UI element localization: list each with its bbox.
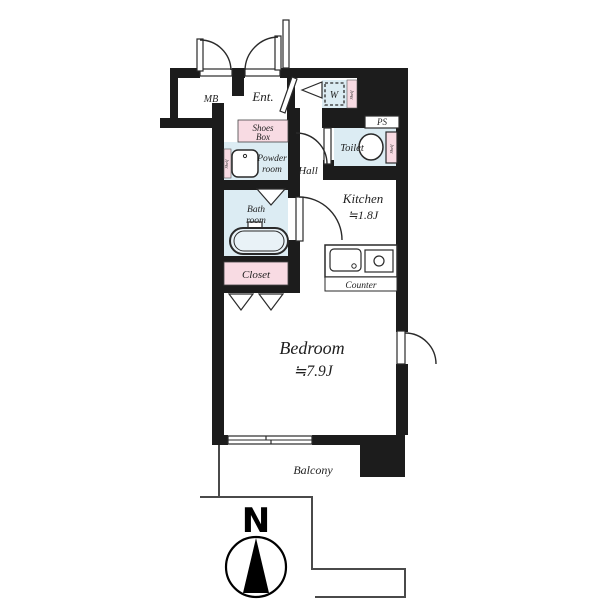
toilet-label: Toilet: [340, 143, 365, 154]
closet-label: Closet: [242, 269, 271, 281]
bedroom-label: Bedroom: [279, 338, 344, 358]
shoes-box-label-2: Box: [256, 132, 270, 142]
closet-door-left-icon: [229, 294, 253, 310]
entrance-door-leaf: [275, 36, 281, 70]
floor-plan: N MB Ent. Shoes Box Powder room Bath roo…: [0, 0, 600, 600]
washer-shelf-label: Shelf: [349, 90, 354, 100]
ps-label: PS: [376, 117, 387, 127]
hall-door-arc: [299, 197, 342, 240]
hall-label: Hall: [297, 165, 318, 177]
toilet-shelf-label: Shelf: [389, 144, 394, 154]
hall-door-leaf: [296, 197, 303, 241]
mb-door-arc: [200, 40, 231, 70]
counter-label: Counter: [345, 281, 376, 291]
washer-door-icon: [302, 82, 322, 98]
entrance-label: Ent.: [251, 89, 273, 104]
entrance-door-arc: [245, 37, 278, 70]
north-label: N: [242, 501, 270, 541]
kitchen-size-label: ≒1.8J: [348, 208, 379, 222]
side-door-leaf: [397, 331, 405, 364]
mb-door-leaf: [197, 39, 203, 71]
powder-room-label-2: room: [262, 165, 282, 175]
exterior-partition: [283, 20, 289, 68]
powder-room-label-1: Powder: [256, 154, 287, 164]
mb-threshold: [200, 69, 232, 76]
toilet-door-leaf: [324, 128, 331, 164]
floor-plan-drawing: N MB Ent. Shoes Box Powder room Bath roo…: [0, 0, 600, 600]
closet-door-right-icon: [259, 294, 283, 310]
bath-room-label-1: Bath: [247, 205, 265, 215]
mb-label: MB: [203, 94, 218, 105]
toilet-door-arc: [296, 133, 327, 164]
bath-room-label-2: room: [246, 216, 266, 226]
bathtub-icon: [230, 228, 288, 254]
balcony-label: Balcony: [293, 463, 333, 477]
bedroom-size-label: ≒7.9J: [293, 363, 333, 380]
compass: N: [226, 501, 286, 597]
kitchen-label: Kitchen: [342, 191, 383, 206]
powder-shelf-label: Shelf: [224, 159, 229, 169]
side-door-arc: [405, 333, 436, 364]
